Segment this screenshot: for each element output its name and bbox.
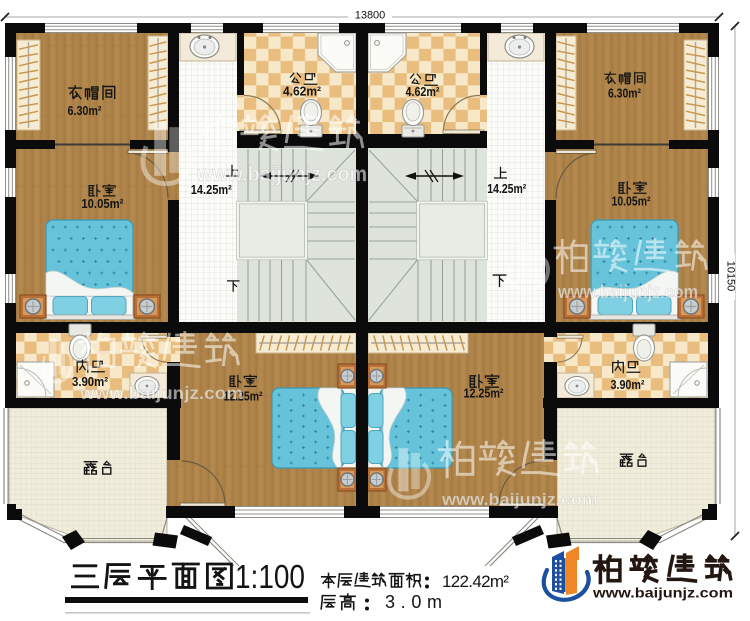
svg-text:14.25m²: 14.25m²: [487, 181, 527, 196]
svg-text:122.42m²: 122.42m²: [442, 572, 509, 591]
svg-text:13800: 13800: [355, 10, 386, 22]
svg-text:www.baijunjz.com: www.baijunjz.com: [557, 282, 698, 302]
svg-text:www.baijunjz.com: www.baijunjz.com: [196, 163, 367, 186]
svg-text:www.baijunjz.com: www.baijunjz.com: [592, 586, 733, 601]
svg-text:10.05m²: 10.05m²: [81, 196, 124, 211]
svg-text:6.30m²: 6.30m²: [68, 103, 103, 118]
svg-text:www.baijunjz.com: www.baijunjz.com: [441, 490, 598, 509]
svg-text:10150: 10150: [725, 261, 737, 292]
svg-text:www.baijunjz.com: www.baijunjz.com: [79, 383, 243, 403]
svg-text:6.30m²: 6.30m²: [608, 86, 642, 101]
svg-text:10.05m²: 10.05m²: [612, 194, 652, 209]
svg-text:1:100: 1:100: [235, 558, 305, 595]
svg-text:12.25m²: 12.25m²: [464, 386, 505, 401]
svg-text:3.0m: 3.0m: [385, 592, 442, 612]
svg-text:4.62m²: 4.62m²: [406, 84, 441, 99]
svg-text:4.62m²: 4.62m²: [283, 84, 322, 99]
svg-text:3.90m²: 3.90m²: [611, 377, 646, 392]
